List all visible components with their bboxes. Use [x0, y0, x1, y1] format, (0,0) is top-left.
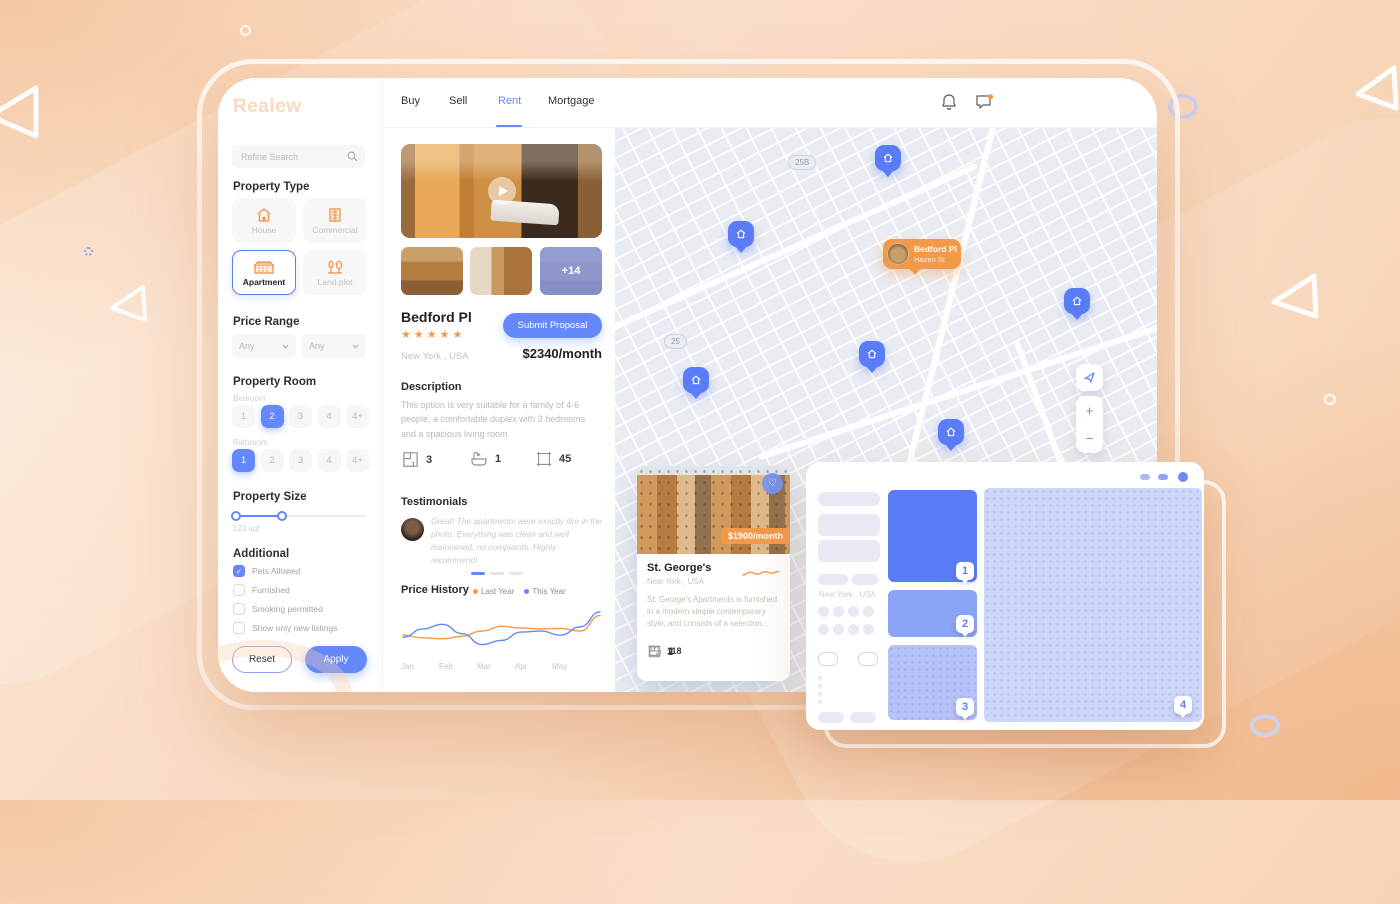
app-logo: Realew — [233, 96, 301, 118]
bedroom-chip-2[interactable]: 2 — [261, 405, 284, 428]
price-min-value: Any — [239, 341, 255, 351]
listing-location: New York , USA — [401, 351, 469, 362]
bedroom-chip-3[interactable]: 3 — [289, 405, 312, 428]
bathroom-chip-3[interactable]: 3 — [289, 449, 312, 472]
month-label: Jan — [401, 662, 414, 671]
tab-sell[interactable]: Sell — [449, 95, 467, 107]
pin-house-icon — [882, 152, 894, 164]
skeleton-square — [863, 606, 874, 617]
area-icon — [535, 450, 553, 468]
more-photos-count: +14 — [540, 247, 602, 295]
navigation-arrow-icon — [1083, 371, 1096, 384]
card-price-badge: $1900/month — [721, 528, 790, 544]
floorplan-icon — [401, 450, 420, 469]
window-dot — [1158, 474, 1168, 480]
skeleton-bar — [818, 574, 848, 585]
property-size-title: Property Size — [233, 491, 307, 503]
skeleton-dot — [818, 700, 822, 704]
skeleton-square — [848, 624, 859, 635]
size-slider-handle-min[interactable] — [231, 511, 241, 521]
baths-count: 1 — [495, 453, 501, 465]
skeleton-icon — [818, 652, 838, 666]
legend-this-year: This Year — [524, 587, 565, 596]
commercial-building-icon — [326, 207, 344, 223]
window-dot — [1178, 472, 1188, 482]
notification-dot — [988, 94, 993, 99]
skeleton-dot — [818, 692, 822, 696]
decor-circle-icon — [240, 25, 251, 36]
property-type-land-plot[interactable]: Land plot — [303, 250, 367, 295]
bathroom-chip-4plus[interactable]: 4+ — [346, 449, 369, 472]
bathroom-chips: 1 2 3 4 4+ — [232, 449, 369, 472]
house-icon — [255, 207, 273, 223]
price-history-title: Price History — [401, 584, 469, 596]
skeleton-dot — [818, 676, 822, 680]
map-pin[interactable] — [859, 341, 885, 367]
pin-house-icon — [690, 374, 702, 386]
listing-price: $2340/month — [502, 346, 602, 361]
chevron-down-icon — [282, 344, 289, 349]
property-type-label: Apartment — [243, 277, 286, 287]
map-listing-card[interactable]: ♡ $1900/month St. George's New York , US… — [637, 466, 790, 681]
rating-stars: ★★★★★ — [401, 328, 465, 341]
skeleton-icon — [858, 652, 878, 666]
map-pin[interactable] — [683, 367, 709, 393]
decor-triangle-icon — [1350, 62, 1400, 122]
skeleton-square — [833, 606, 844, 617]
bathroom-chip-4[interactable]: 4 — [318, 449, 341, 472]
testimonials-title: Testimonials — [401, 496, 467, 508]
property-room-title: Property Room — [233, 376, 316, 388]
pin-house-icon — [866, 348, 878, 360]
submit-proposal-button[interactable]: Submit Proposal — [503, 313, 602, 338]
additional-title: Additional — [233, 548, 289, 560]
bell-icon[interactable] — [941, 93, 957, 111]
bedroom-chips: 1 2 3 4 4+ — [232, 405, 369, 428]
tab-mortgage[interactable]: Mortgage — [548, 95, 594, 107]
property-type-commercial[interactable]: Commercial — [303, 198, 367, 243]
testimonial-avatar — [401, 518, 424, 541]
bedroom-chip-4plus[interactable]: 4+ — [346, 405, 369, 428]
pin-house-icon — [1071, 295, 1083, 307]
size-slider-fill — [237, 515, 281, 517]
month-label: Apr — [515, 662, 527, 671]
property-type-house[interactable]: House — [232, 198, 296, 243]
main-photo[interactable] — [401, 144, 602, 238]
skeleton-square — [863, 624, 874, 635]
month-label: Mar — [477, 662, 491, 671]
checkbox-icon — [233, 584, 245, 596]
search-icon — [347, 151, 358, 162]
step-tag-2: 2 — [956, 615, 974, 633]
card-location: New York , USA — [647, 577, 704, 586]
top-navigation: Buy Sell Rent Mortgage Amanda Grey ▾ — [383, 78, 1157, 128]
pin-photo — [887, 243, 909, 265]
card-description: St. George's Apartments is furnished in … — [647, 594, 780, 630]
skeleton-square — [818, 606, 829, 617]
highlight-block-4 — [984, 488, 1202, 722]
card-sparkline-chart — [741, 562, 781, 580]
zoom-in-button[interactable]: + — [1086, 404, 1094, 417]
description-title: Description — [401, 381, 462, 393]
chart-legend: Last Year This Year — [473, 587, 566, 596]
pin-house-icon — [945, 426, 957, 438]
map-zoom-control: + − — [1076, 396, 1103, 453]
price-range-title: Price Range — [233, 316, 299, 328]
map-pin[interactable] — [1064, 288, 1090, 314]
step-tag-3: 3 — [956, 698, 974, 716]
locate-button[interactable] — [1076, 364, 1103, 391]
apartment-icon — [253, 259, 275, 275]
bathroom-label: Bathroom — [233, 438, 268, 447]
map-pin[interactable] — [938, 419, 964, 445]
decor-triangle-icon — [1262, 268, 1326, 332]
skeleton-square — [818, 624, 829, 635]
amenity-area: 45 — [535, 450, 571, 468]
search-input[interactable] — [241, 145, 341, 168]
bathroom-chip-2[interactable]: 2 — [261, 449, 284, 472]
area-icon — [647, 644, 661, 658]
skeleton-bar — [818, 492, 880, 506]
amenity-area: 118 — [647, 644, 682, 658]
play-icon — [499, 186, 508, 196]
area-value: 45 — [559, 453, 571, 465]
skeleton-pill — [818, 712, 844, 723]
pin-house-icon — [735, 228, 747, 240]
refine-search-box[interactable] — [232, 145, 365, 168]
skeleton-pill — [850, 712, 876, 723]
testimonial-pager[interactable] — [471, 572, 523, 575]
decor-circle-icon — [84, 247, 93, 256]
listing-title: Bedford Pl — [401, 309, 472, 325]
size-slider-handle-max[interactable] — [277, 511, 287, 521]
rooms-count: 3 — [426, 454, 432, 466]
bathtub-icon — [469, 450, 489, 468]
property-type-label: Commercial — [312, 225, 357, 235]
trees-icon — [325, 259, 345, 275]
bedroom-chip-1[interactable]: 1 — [232, 405, 255, 428]
area-value: 118 — [667, 646, 682, 656]
chat-icon[interactable] — [975, 94, 994, 111]
thumbnail-2[interactable] — [470, 247, 532, 295]
decor-triangle-icon — [0, 78, 50, 150]
month-label: Feb — [439, 662, 453, 671]
property-type-apartment[interactable]: Apartment — [232, 250, 296, 295]
skeleton-bar — [852, 574, 878, 585]
card-title: St. George's — [647, 562, 711, 574]
skeleton-square — [848, 606, 859, 617]
checkbox-furnished[interactable]: Furnished — [233, 584, 290, 596]
step-tag-1: 1 — [956, 562, 974, 580]
skeleton-block — [818, 514, 880, 536]
bedroom-label: Bedroom — [233, 394, 265, 403]
month-label: May — [552, 662, 567, 671]
property-type-grid: House Commercial Apartment — [232, 198, 368, 295]
property-type-label: House — [252, 225, 277, 235]
decor-triangle-icon — [103, 280, 153, 330]
property-type-title: Property Type — [233, 181, 309, 193]
checkbox-icon — [233, 622, 245, 634]
decor-circle-icon — [1324, 394, 1336, 405]
checkbox-icon — [233, 603, 245, 615]
map-pin[interactable] — [728, 221, 754, 247]
road-badge-25: 25 — [664, 334, 687, 349]
amenity-rooms: 3 — [401, 450, 432, 469]
tab-rent[interactable]: Rent — [498, 95, 521, 107]
active-map-pin-bedford[interactable]: Bedford Pl Hazen St — [883, 239, 961, 269]
property-type-label: Land plot — [318, 277, 353, 287]
legend-dot-orange — [473, 589, 478, 594]
checkbox-checked-icon: ✓ — [233, 565, 245, 577]
window-dot — [1140, 474, 1150, 480]
road-badge-25b: 25B — [788, 155, 816, 170]
bathroom-chip-1[interactable]: 1 — [232, 449, 255, 472]
testimonial-text: Great! The apartments were exactly like … — [431, 515, 603, 567]
tab-buy[interactable]: Buy — [401, 95, 420, 107]
amenity-baths: 1 — [469, 450, 501, 468]
price-history-chart — [401, 598, 602, 658]
legend-dot-blue — [524, 589, 529, 594]
map-pin[interactable] — [875, 145, 901, 171]
price-max-value: Any — [309, 341, 325, 351]
description-text: This option is very suitable for a famil… — [401, 398, 602, 441]
checkbox-label: Pets Allowed — [252, 566, 301, 576]
decor-circle-icon — [1250, 714, 1280, 737]
pin-title: Bedford Pl — [914, 244, 957, 254]
thumbnail-1[interactable] — [401, 247, 463, 295]
skeleton-square — [833, 624, 844, 635]
checkbox-label: Furnished — [252, 585, 290, 595]
skeleton-block — [818, 540, 880, 562]
active-tab-underline — [496, 125, 522, 127]
size-value: 123 sqf — [233, 524, 259, 533]
thumbnail-more[interactable]: +14 — [540, 247, 602, 295]
size-slider-track[interactable] — [233, 515, 366, 517]
checkbox-smoking-permitted[interactable]: Smoking permitted — [233, 603, 323, 615]
chevron-down-icon — [352, 344, 359, 349]
checkbox-label: Smoking permitted — [252, 604, 323, 614]
checkbox-pets-allowed[interactable]: ✓ Pets Allowed — [233, 565, 301, 577]
favorite-button[interactable]: ♡ — [762, 473, 783, 494]
overlay-wireframe-window: New York , USA 1 2 3 4 — [806, 462, 1204, 730]
zoom-out-button[interactable]: − — [1086, 432, 1094, 445]
play-video-button[interactable] — [488, 177, 516, 205]
filter-sidebar: Realew Property Type House — [218, 78, 383, 692]
price-min-select[interactable]: Any — [232, 334, 296, 358]
checkbox-new-listings[interactable]: Show only new listings — [233, 622, 338, 634]
bedroom-chip-4[interactable]: 4 — [318, 405, 341, 428]
skeleton-dot — [818, 684, 822, 688]
checkbox-label: Show only new listings — [252, 623, 338, 633]
price-max-select[interactable]: Any — [302, 334, 366, 358]
pin-subtitle: Hazen St — [914, 255, 945, 264]
step-tag-4: 4 — [1174, 696, 1192, 714]
legend-last-year: Last Year — [473, 587, 514, 596]
skeleton-location-text: New York , USA — [819, 590, 876, 599]
